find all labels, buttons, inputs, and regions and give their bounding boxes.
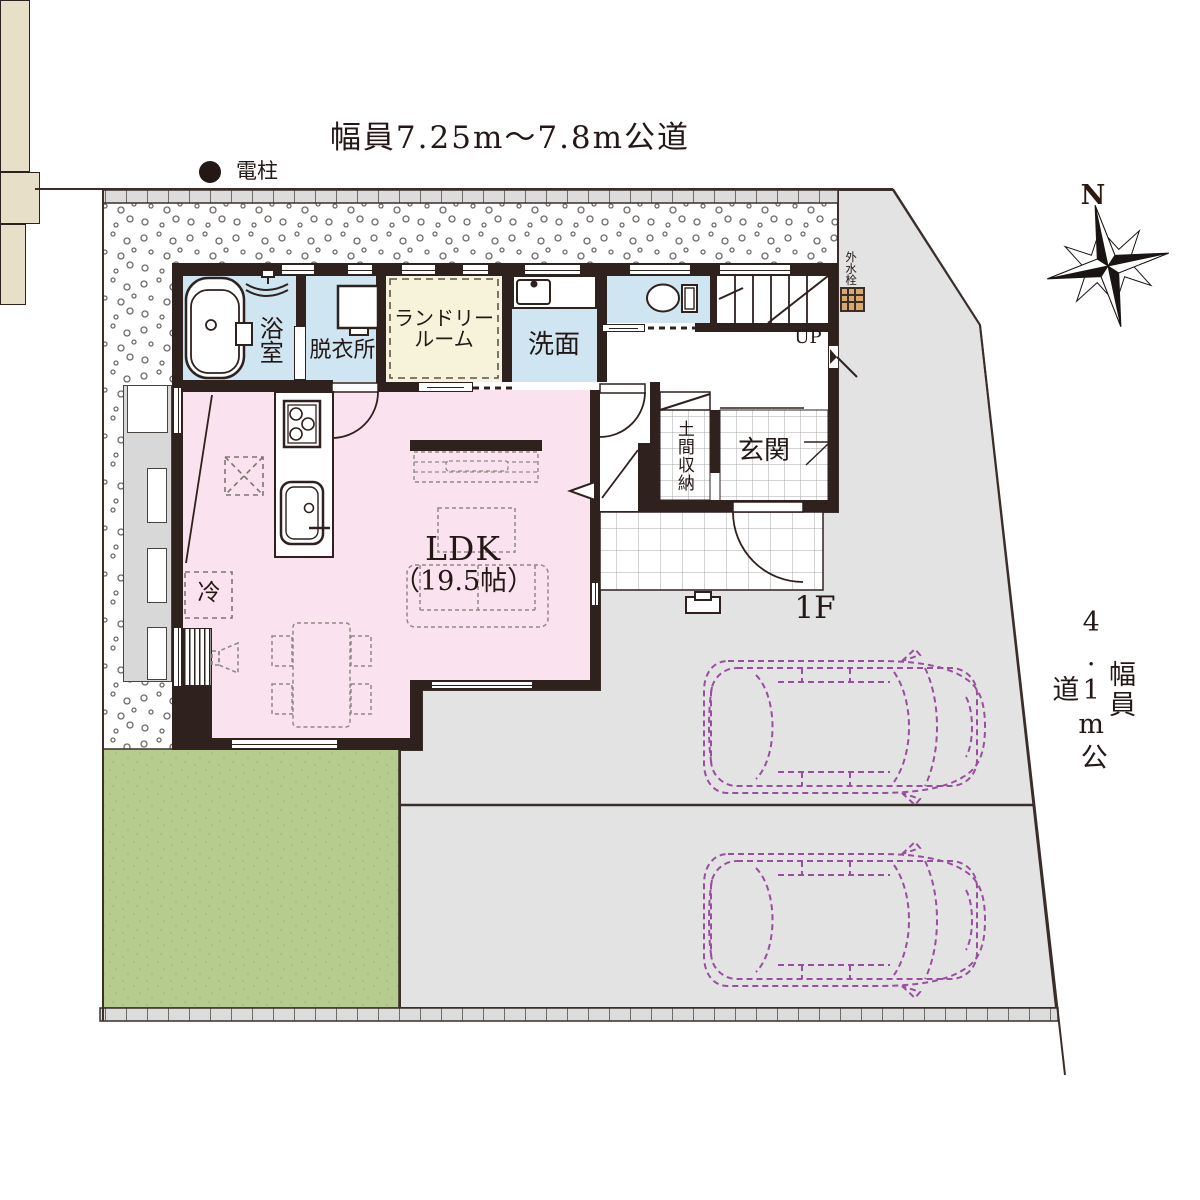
stairs-up-label: UP [790, 329, 826, 348]
bath-label: 浴室 [256, 302, 281, 378]
entrance-label: 玄関 [735, 438, 793, 465]
sidewalk-strip-bottom [100, 1008, 1058, 1021]
window-washroom [525, 263, 580, 276]
sidewalk-strip-top [103, 190, 838, 203]
neighbor-unit-2 [147, 468, 167, 523]
window-south-living [232, 738, 337, 750]
washroom-label: 洗面 [521, 332, 587, 359]
compass-rose [1034, 192, 1181, 339]
dressing-label: 脱衣所 [305, 339, 380, 362]
neighbor-unit-4 [147, 627, 167, 680]
wood-deck [183, 628, 212, 686]
wall-east [828, 263, 838, 512]
wall-washroom-toilet [597, 263, 607, 382]
washroom-floor [512, 275, 597, 382]
wall-ldk-east [590, 390, 600, 690]
lawn-area [103, 749, 399, 1008]
outdoor-faucet-icon [840, 287, 865, 312]
road-right-label: 幅員4.1m公道 [1048, 595, 1133, 785]
laundry-line2: ルーム [414, 327, 473, 351]
utility-pole-dot [199, 161, 221, 183]
wall-doma-entrance [710, 410, 720, 473]
window-ldk-east [590, 583, 600, 605]
ldk-floor-lower [183, 680, 410, 738]
window-bath [282, 263, 314, 276]
wall-entrance-south [650, 500, 838, 512]
site-plan-canvas: 幅員7.25m～7.8m公道 電柱 N 浴室 脱衣所 ランドリー ルーム 洗面 … [0, 0, 1200, 1200]
window-stairs [720, 263, 790, 276]
porch-tiles [600, 512, 823, 590]
ldk-label: LDK [403, 532, 523, 567]
compass-n-label: N [1078, 182, 1108, 210]
window-west-living [172, 628, 183, 686]
wall-dressing-laundry [376, 263, 386, 382]
neighbor-unit-3 [147, 548, 167, 603]
laundry-label: ランドリー ルーム [390, 308, 498, 350]
window-toilet [630, 263, 690, 276]
wall-kitchen-stub [323, 380, 333, 450]
wall-below-laundry [376, 382, 418, 392]
outdoor-faucet-label: 外水栓 [845, 248, 857, 288]
utility-pole-label: 電柱 [227, 160, 287, 182]
window-south-dining [432, 680, 532, 690]
wall-laundry-washroom [502, 263, 512, 382]
door-laundry-slider [418, 382, 473, 392]
window-laundry-2 [463, 263, 488, 276]
ldk-floor [183, 390, 590, 680]
window-dressing [348, 263, 372, 276]
fridge-label: 冷 [194, 581, 224, 605]
doma-storage-label: 土間収納 [674, 418, 692, 494]
dressing-floor [306, 275, 376, 382]
door-toilet-slider [602, 324, 645, 332]
window-west-kitchen [172, 388, 183, 433]
wall-below-bath [172, 380, 332, 392]
wall-hall-doma [650, 382, 660, 512]
floor-label: 1F [790, 592, 840, 625]
neighbor-unit-1 [127, 385, 168, 433]
wall-step-vertical [410, 680, 422, 750]
toilet-floor [607, 275, 710, 323]
wall-cabinet-side [638, 443, 650, 512]
wall-corner-sw [172, 682, 212, 742]
window-laundry-1 [402, 263, 435, 276]
wall-toilet-stairs [710, 275, 717, 323]
ldk-size-label: （19.5帖） [393, 568, 533, 596]
road-top-label: 幅員7.25m～7.8m公道 [300, 122, 720, 155]
